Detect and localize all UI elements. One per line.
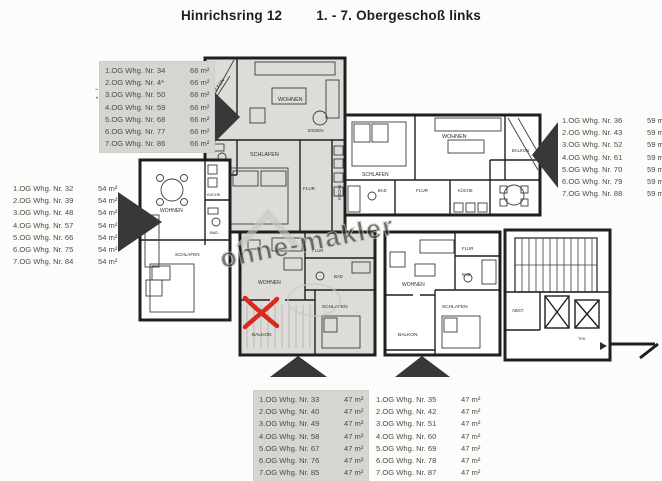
list-row: 7.OG Whg. Nr. 84 54 m² (13, 256, 117, 268)
list-type66: 1.OG Whg. Nr. 34 66 m² 2.OG Whg. Nr. 4* … (100, 62, 214, 152)
apartment-59: SCHLAFEN WOHNEN BALKON BAD FLUR KÜCHE (345, 115, 540, 215)
list-row: 4.OG Whg. Nr. 59 66 m² (105, 102, 209, 114)
list-row: 3.OG Whg. Nr. 50 66 m² (105, 89, 209, 101)
room-label-balkon-e: BALKON (398, 332, 418, 338)
list-row: 5.OG Whg. Nr. 68 66 m² (105, 114, 209, 126)
list-row: 7.OG Whg. Nr. 86 66 m² (105, 138, 209, 150)
room-label-trh: TRH. (578, 337, 586, 341)
list-type47: 1.OG Whg. Nr. 35 47 m² 2.OG Whg. Nr. 42 … (371, 391, 485, 481)
room-label-bad-d: BAD (334, 274, 343, 279)
list-type54: 1.OG Whg. Nr. 32 54 m² 2.OG Whg. Nr. 39 … (8, 180, 122, 270)
list-row: 5.OG Whg. Nr. 69 47 m² (376, 443, 480, 455)
room-label-bad-e: BAD (462, 272, 471, 277)
list-row: 5.OG Whg. Nr. 66 54 m² (13, 232, 117, 244)
list-row: 4.OG Whg. Nr. 58 47 m² (259, 431, 363, 443)
list-row: 6.OG Whg. Nr. 75 54 m² (13, 244, 117, 256)
list-row: 4.OG Whg. Nr. 61 59 m² (562, 152, 662, 164)
list-row: 6.OG Whg. Nr. 79 59 m² (562, 176, 662, 188)
arrow-type47 (395, 356, 450, 377)
list-row: 3.OG Whg. Nr. 51 47 m² (376, 418, 480, 430)
arrow-type47-marked (270, 356, 327, 377)
room-label-schlafen-b: SCHLAFEN (362, 172, 389, 178)
stray-mark-dot: • (96, 96, 98, 102)
scanned-floorplan-page: { "title": {"address": "Hinrichsring 12"… (0, 0, 662, 480)
stairwell: ABST. TRH. (505, 230, 658, 360)
list-row: 1.OG Whg. Nr. 36 59 m² (562, 115, 662, 127)
room-label-flur-e: FLUR (462, 246, 473, 251)
title-floor-range: 1. - 7. Obergeschoß links (316, 8, 481, 23)
list-row: 6.OG Whg. Nr. 77 66 m² (105, 126, 209, 138)
list-row: 2.OG Whg. Nr. 39 54 m² (13, 195, 117, 207)
page-title: Hinrichsring 12 1. - 7. Obergeschoß link… (0, 8, 662, 23)
list-row: 1.OG Whg. Nr. 33 47 m² (259, 394, 363, 406)
list-row: 5.OG Whg. Nr. 70 59 m² (562, 164, 662, 176)
title-address: Hinrichsring 12 (181, 8, 282, 23)
apartment-47: WOHNEN FLUR BAD SCHLAFEN BALKON (385, 232, 500, 355)
list-row: 4.OG Whg. Nr. 60 47 m² (376, 431, 480, 443)
room-label-schlafen-e: SCHLAFEN (442, 304, 468, 310)
list-row: 4.OG Whg. Nr. 57 54 m² (13, 220, 117, 232)
list-row: 2.OG Whg. Nr. 42 47 m² (376, 406, 480, 418)
room-label-kueche-b: KÜCHE (458, 188, 473, 193)
room-label-bad-c: BAD (210, 230, 218, 235)
room-label-schlafen-a: SCHLAFEN (250, 152, 279, 158)
list-row: 3.OG Whg. Nr. 52 59 m² (562, 139, 662, 151)
room-label-wohnen-c: WOHNEN (160, 208, 183, 214)
list-row: 5.OG Whg. Nr. 67 47 m² (259, 443, 363, 455)
room-label-wohnen-e: WOHNEN (402, 282, 425, 288)
room-label-schlafen-c: SCHLAFEN (175, 252, 200, 257)
list-type59: 1.OG Whg. Nr. 36 59 m² 2.OG Whg. Nr. 43 … (557, 112, 662, 202)
list-row: 1.OG Whg. Nr. 32 54 m² (13, 183, 117, 195)
room-label-balkon-b: BALKON (512, 148, 529, 153)
room-label-kueche-c: KÜCHE (207, 193, 221, 197)
list-row: 1.OG Whg. Nr. 35 47 m² (376, 394, 480, 406)
room-label-flur-a: FLUR (303, 186, 316, 191)
list-row: 6.OG Whg. Nr. 76 47 m² (259, 455, 363, 467)
room-label-bad-b: BAD (378, 188, 387, 193)
list-row: 3.OG Whg. Nr. 48 54 m² (13, 207, 117, 219)
room-label-kueche-a: KÜCHE (337, 185, 342, 200)
list-row: 7.OG Whg. Nr. 87 47 m² (376, 467, 480, 479)
room-label-balkon-d: BALKON (252, 332, 272, 338)
room-label-essen: ESSEN (308, 128, 324, 133)
apartment-54: WOHNEN KÜCHE BAD SCHLAFEN (140, 160, 230, 320)
list-row: 7.OG Whg. Nr. 88 59 m² (562, 188, 662, 200)
list-row: 6.OG Whg. Nr. 78 47 m² (376, 455, 480, 467)
room-label-abst: ABST. (512, 308, 524, 313)
list-row: 2.OG Whg. Nr. 43 59 m² (562, 127, 662, 139)
room-label-wohnen-a: WOHNEN (278, 97, 303, 103)
list-row: 2.OG Whg. Nr. 4* 66 m² (105, 77, 209, 89)
list-row: 1.OG Whg. Nr. 34 66 m² (105, 65, 209, 77)
list-row: 3.OG Whg. Nr. 49 47 m² (259, 418, 363, 430)
room-label-wohnen-b: WOHNEN (442, 134, 467, 140)
list-type47-marked: 1.OG Whg. Nr. 33 47 m² 2.OG Whg. Nr. 40 … (254, 391, 368, 481)
room-label-wohnen-d: WOHNEN (258, 280, 281, 286)
room-label-flur-b: FLUR (416, 188, 429, 193)
list-row: 7.OG Whg. Nr. 85 47 m² (259, 467, 363, 479)
list-row: 2.OG Whg. Nr. 40 47 m² (259, 406, 363, 418)
stray-mark-dash: - (95, 84, 98, 94)
